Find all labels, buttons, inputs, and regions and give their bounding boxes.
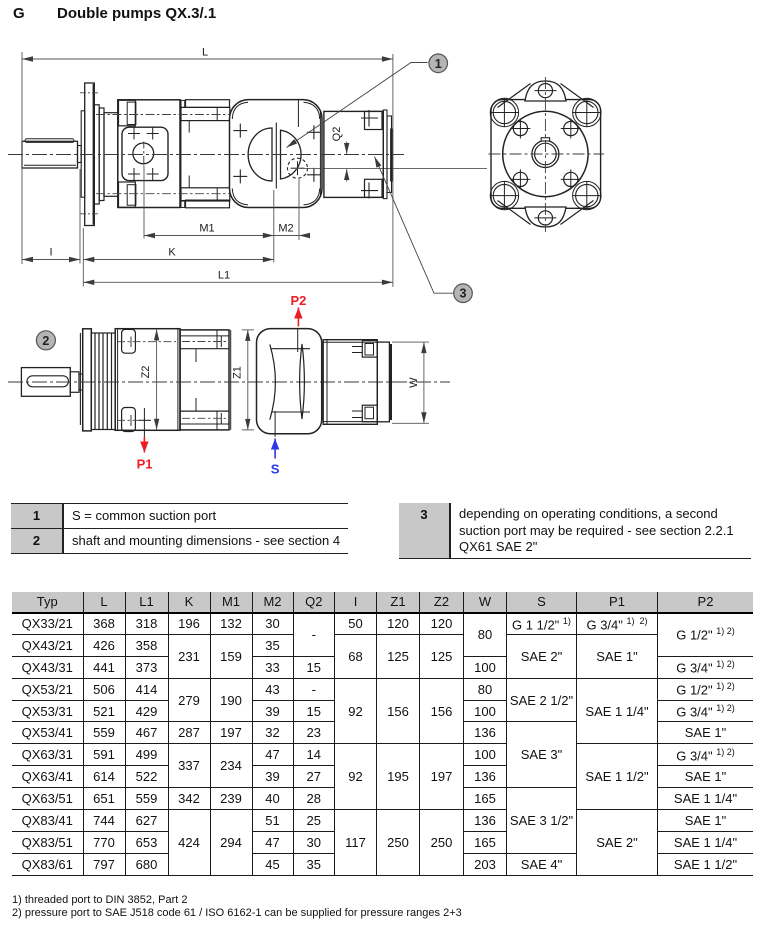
svg-text:L1: L1 (218, 270, 230, 282)
svg-text:W: W (408, 377, 420, 388)
svg-text:S: S (271, 462, 280, 477)
svg-text:3: 3 (460, 287, 467, 301)
svg-text:P1: P1 (137, 457, 153, 472)
svg-text:K: K (168, 247, 176, 259)
svg-text:P2: P2 (290, 293, 306, 308)
svg-text:1: 1 (435, 57, 442, 71)
svg-text:Z2: Z2 (140, 366, 152, 379)
svg-text:M2: M2 (278, 223, 293, 235)
svg-text:I: I (49, 247, 52, 259)
svg-text:M1: M1 (199, 223, 214, 235)
svg-text:2: 2 (42, 334, 49, 348)
svg-text:Q2: Q2 (331, 127, 343, 142)
svg-text:L: L (202, 47, 208, 59)
svg-text:Z1: Z1 (232, 366, 244, 379)
